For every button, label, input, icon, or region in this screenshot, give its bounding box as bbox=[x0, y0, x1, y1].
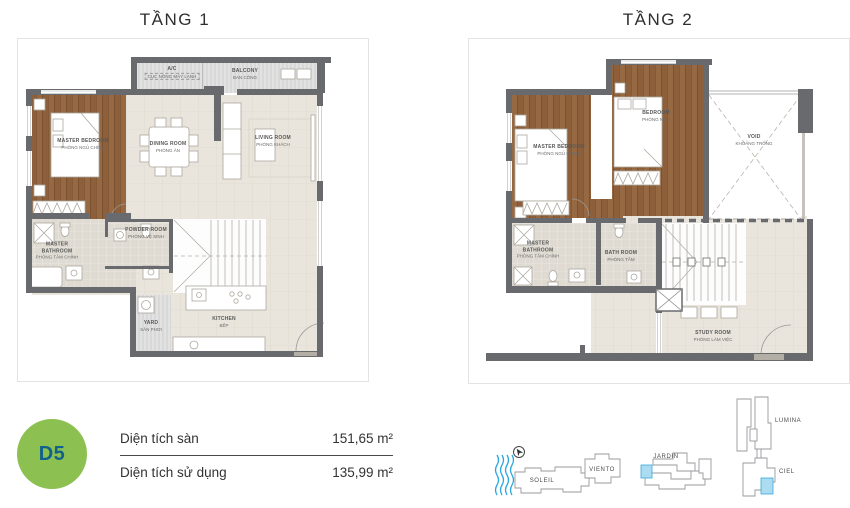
floor2-plan: MASTER BEDROOM PHÒNG NGỦ CHÍNH BEDROOM P… bbox=[468, 38, 850, 384]
floor1-drawing bbox=[18, 39, 368, 381]
building-label-jardin: JARDIN bbox=[653, 454, 678, 460]
floor1-title: TẦNG 1 bbox=[17, 10, 333, 30]
floor2-drawing bbox=[469, 39, 849, 383]
site-map: SOLEIL VIENTO JARDIN LUMINA CIEL bbox=[485, 393, 850, 508]
room-label-balcony: BALCONY BAN CÔNG bbox=[232, 68, 258, 80]
building-label-ciel: CIEL bbox=[779, 469, 795, 475]
room-label-void: VOID KHOẢNG TRỐNG bbox=[736, 134, 773, 146]
compass-icon bbox=[514, 447, 525, 458]
area-label: Diện tích sử dụng bbox=[120, 465, 227, 480]
unit-code-badge: D5 bbox=[17, 419, 87, 489]
room-label-master-bath-f1: MASTER BATHROOM PHÒNG TẮM CHÍNH bbox=[36, 242, 79, 261]
room-label-ac: A/C CỤC NÓNG MÁY LẠNH bbox=[145, 66, 200, 80]
room-label-living: LIVING ROOM PHÒNG KHÁCH bbox=[255, 135, 291, 147]
room-label-dining: DINING ROOM PHÒNG ĂN bbox=[150, 141, 187, 153]
room-label-kitchen: KITCHEN BẾP bbox=[212, 316, 236, 328]
building-label-soleil: SOLEIL bbox=[530, 478, 555, 484]
room-label-bedroom: BEDROOM PHÒNG NGỦ bbox=[642, 110, 670, 122]
area-table: Diện tích sàn 151,65 m² Diện tích sử dụn… bbox=[120, 427, 393, 484]
room-label-master-bedroom-f2: MASTER BEDROOM PHÒNG NGỦ CHÍNH bbox=[533, 144, 584, 156]
floor2-title: TẦNG 2 bbox=[468, 10, 848, 30]
area-value: 151,65 m² bbox=[332, 431, 393, 446]
area-label: Diện tích sàn bbox=[120, 431, 199, 446]
highlight-unit-ciel bbox=[761, 478, 773, 494]
room-label-bath: BATH ROOM PHÒNG TẮM bbox=[605, 250, 637, 262]
room-label-yard: YARD SÂN PHƠI bbox=[140, 320, 162, 332]
building-label-lumina: LUMINA bbox=[775, 418, 801, 424]
room-label-powder: POWDER ROOM PHÒNG VỆ SINH bbox=[125, 227, 167, 239]
area-row-floor: Diện tích sàn 151,65 m² bbox=[120, 427, 393, 456]
room-label-study: STUDY ROOM PHÒNG LÀM VIỆC bbox=[694, 330, 733, 342]
area-value: 135,99 m² bbox=[332, 465, 393, 480]
building-label-viento: VIENTO bbox=[589, 467, 615, 473]
unit-code: D5 bbox=[39, 443, 66, 466]
floorplan-sheet: TẦNG 1 TẦNG 2 bbox=[0, 0, 850, 508]
water-waves-icon bbox=[496, 455, 514, 495]
room-label-master-bath-f2: MASTER BATHROOM PHÒNG TẮM CHÍNH bbox=[517, 241, 560, 260]
area-row-usable: Diện tích sử dụng 135,99 m² bbox=[120, 456, 393, 484]
room-label-master-bedroom-f1: MASTER BEDROOM PHÒNG NGỦ CHÍNH bbox=[57, 138, 108, 150]
highlight-unit-jardin bbox=[641, 465, 652, 478]
floor1-plan: A/C CỤC NÓNG MÁY LẠNH BALCONY BAN CÔNG M… bbox=[17, 38, 369, 382]
